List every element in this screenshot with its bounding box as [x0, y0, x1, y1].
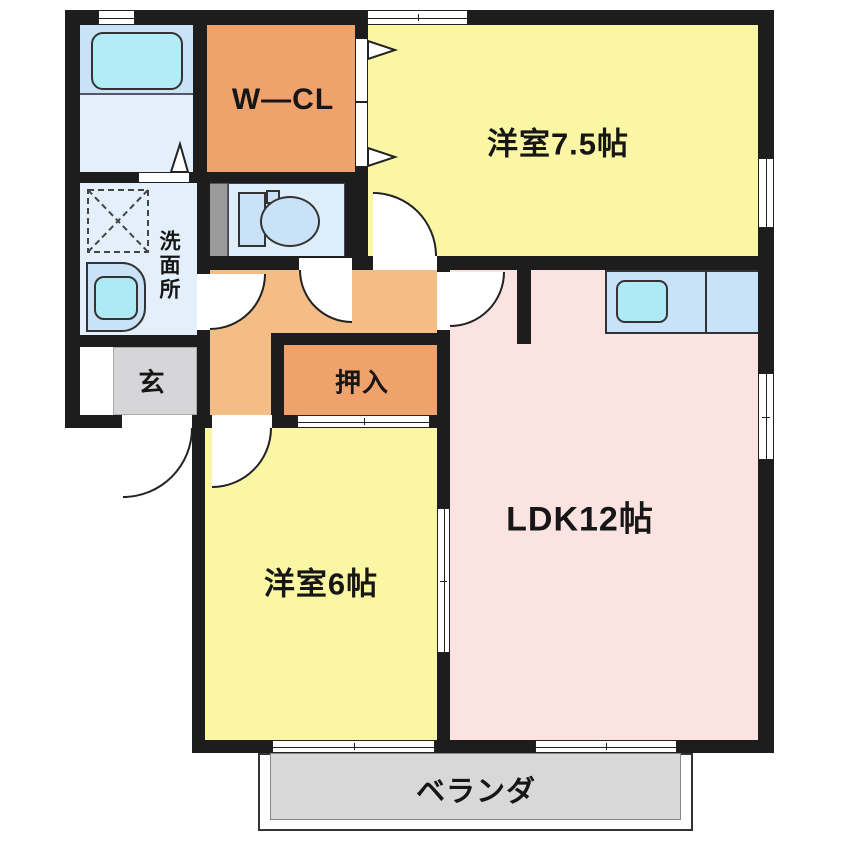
room-label-veranda: ベランダ — [416, 768, 536, 810]
wall — [80, 172, 358, 183]
kitchen-sink-icon — [616, 280, 668, 323]
wall — [192, 415, 205, 753]
room-label-oshiire: 押入 — [335, 363, 389, 400]
room-label-western-room-7-5: 洋室7.5帖 — [487, 119, 629, 164]
window-room75-top — [367, 10, 468, 25]
room-label-washroom: 洗面所 — [153, 230, 183, 302]
duct-shaft — [207, 183, 228, 258]
wall — [271, 345, 284, 415]
door-opening-washroom — [197, 274, 210, 330]
door-opening-bathroom — [138, 172, 190, 183]
door-opening-ldk — [437, 272, 450, 330]
door-swing-entrance — [123, 428, 193, 498]
window-ldk-right — [758, 373, 774, 460]
wall — [271, 333, 437, 345]
window-room6-bottom — [272, 740, 435, 753]
window-bathroom-top — [98, 10, 135, 25]
room-label-western-room-6: 洋室6帖 — [264, 559, 378, 604]
toilet-bowl-icon — [260, 196, 320, 247]
room-label-ldk: LDK12帖 — [506, 492, 654, 541]
door-opening-room75 — [373, 256, 437, 270]
room-label-wcl: W—CL — [232, 83, 334, 117]
window-room75-right — [758, 158, 774, 228]
window-ldk-bottom — [535, 740, 677, 753]
wall — [193, 25, 207, 175]
room-label-entrance: 玄 — [138, 363, 165, 400]
wall — [197, 256, 758, 270]
wall — [437, 256, 450, 753]
kitchen-counter-divider — [705, 270, 707, 334]
kitchen-wall-stub — [517, 258, 531, 344]
wcl-folding-door-panel — [355, 102, 368, 167]
door-opening-room6 — [212, 415, 272, 428]
wcl-folding-door-panel — [355, 38, 368, 102]
sliding-door-oshiire — [297, 415, 430, 428]
sliding-door-room6-ldk — [437, 508, 450, 653]
door-opening-entrance — [122, 415, 192, 428]
wall — [345, 172, 368, 258]
bathtub-icon — [91, 32, 183, 90]
floorplan: W—CL 洋室7.5帖 洗面所 玄 押入 洋室6帖 LDK12帖 ベランダ — [0, 0, 846, 846]
door-opening-toilet — [299, 258, 352, 270]
wall — [80, 335, 210, 347]
vanity-bowl-icon — [94, 276, 138, 320]
wall — [65, 10, 80, 428]
